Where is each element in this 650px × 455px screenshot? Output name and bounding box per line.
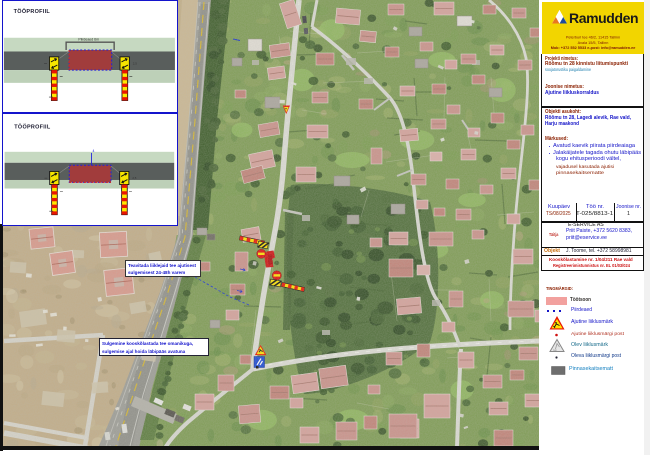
svg-text:km: km xyxy=(554,348,557,352)
